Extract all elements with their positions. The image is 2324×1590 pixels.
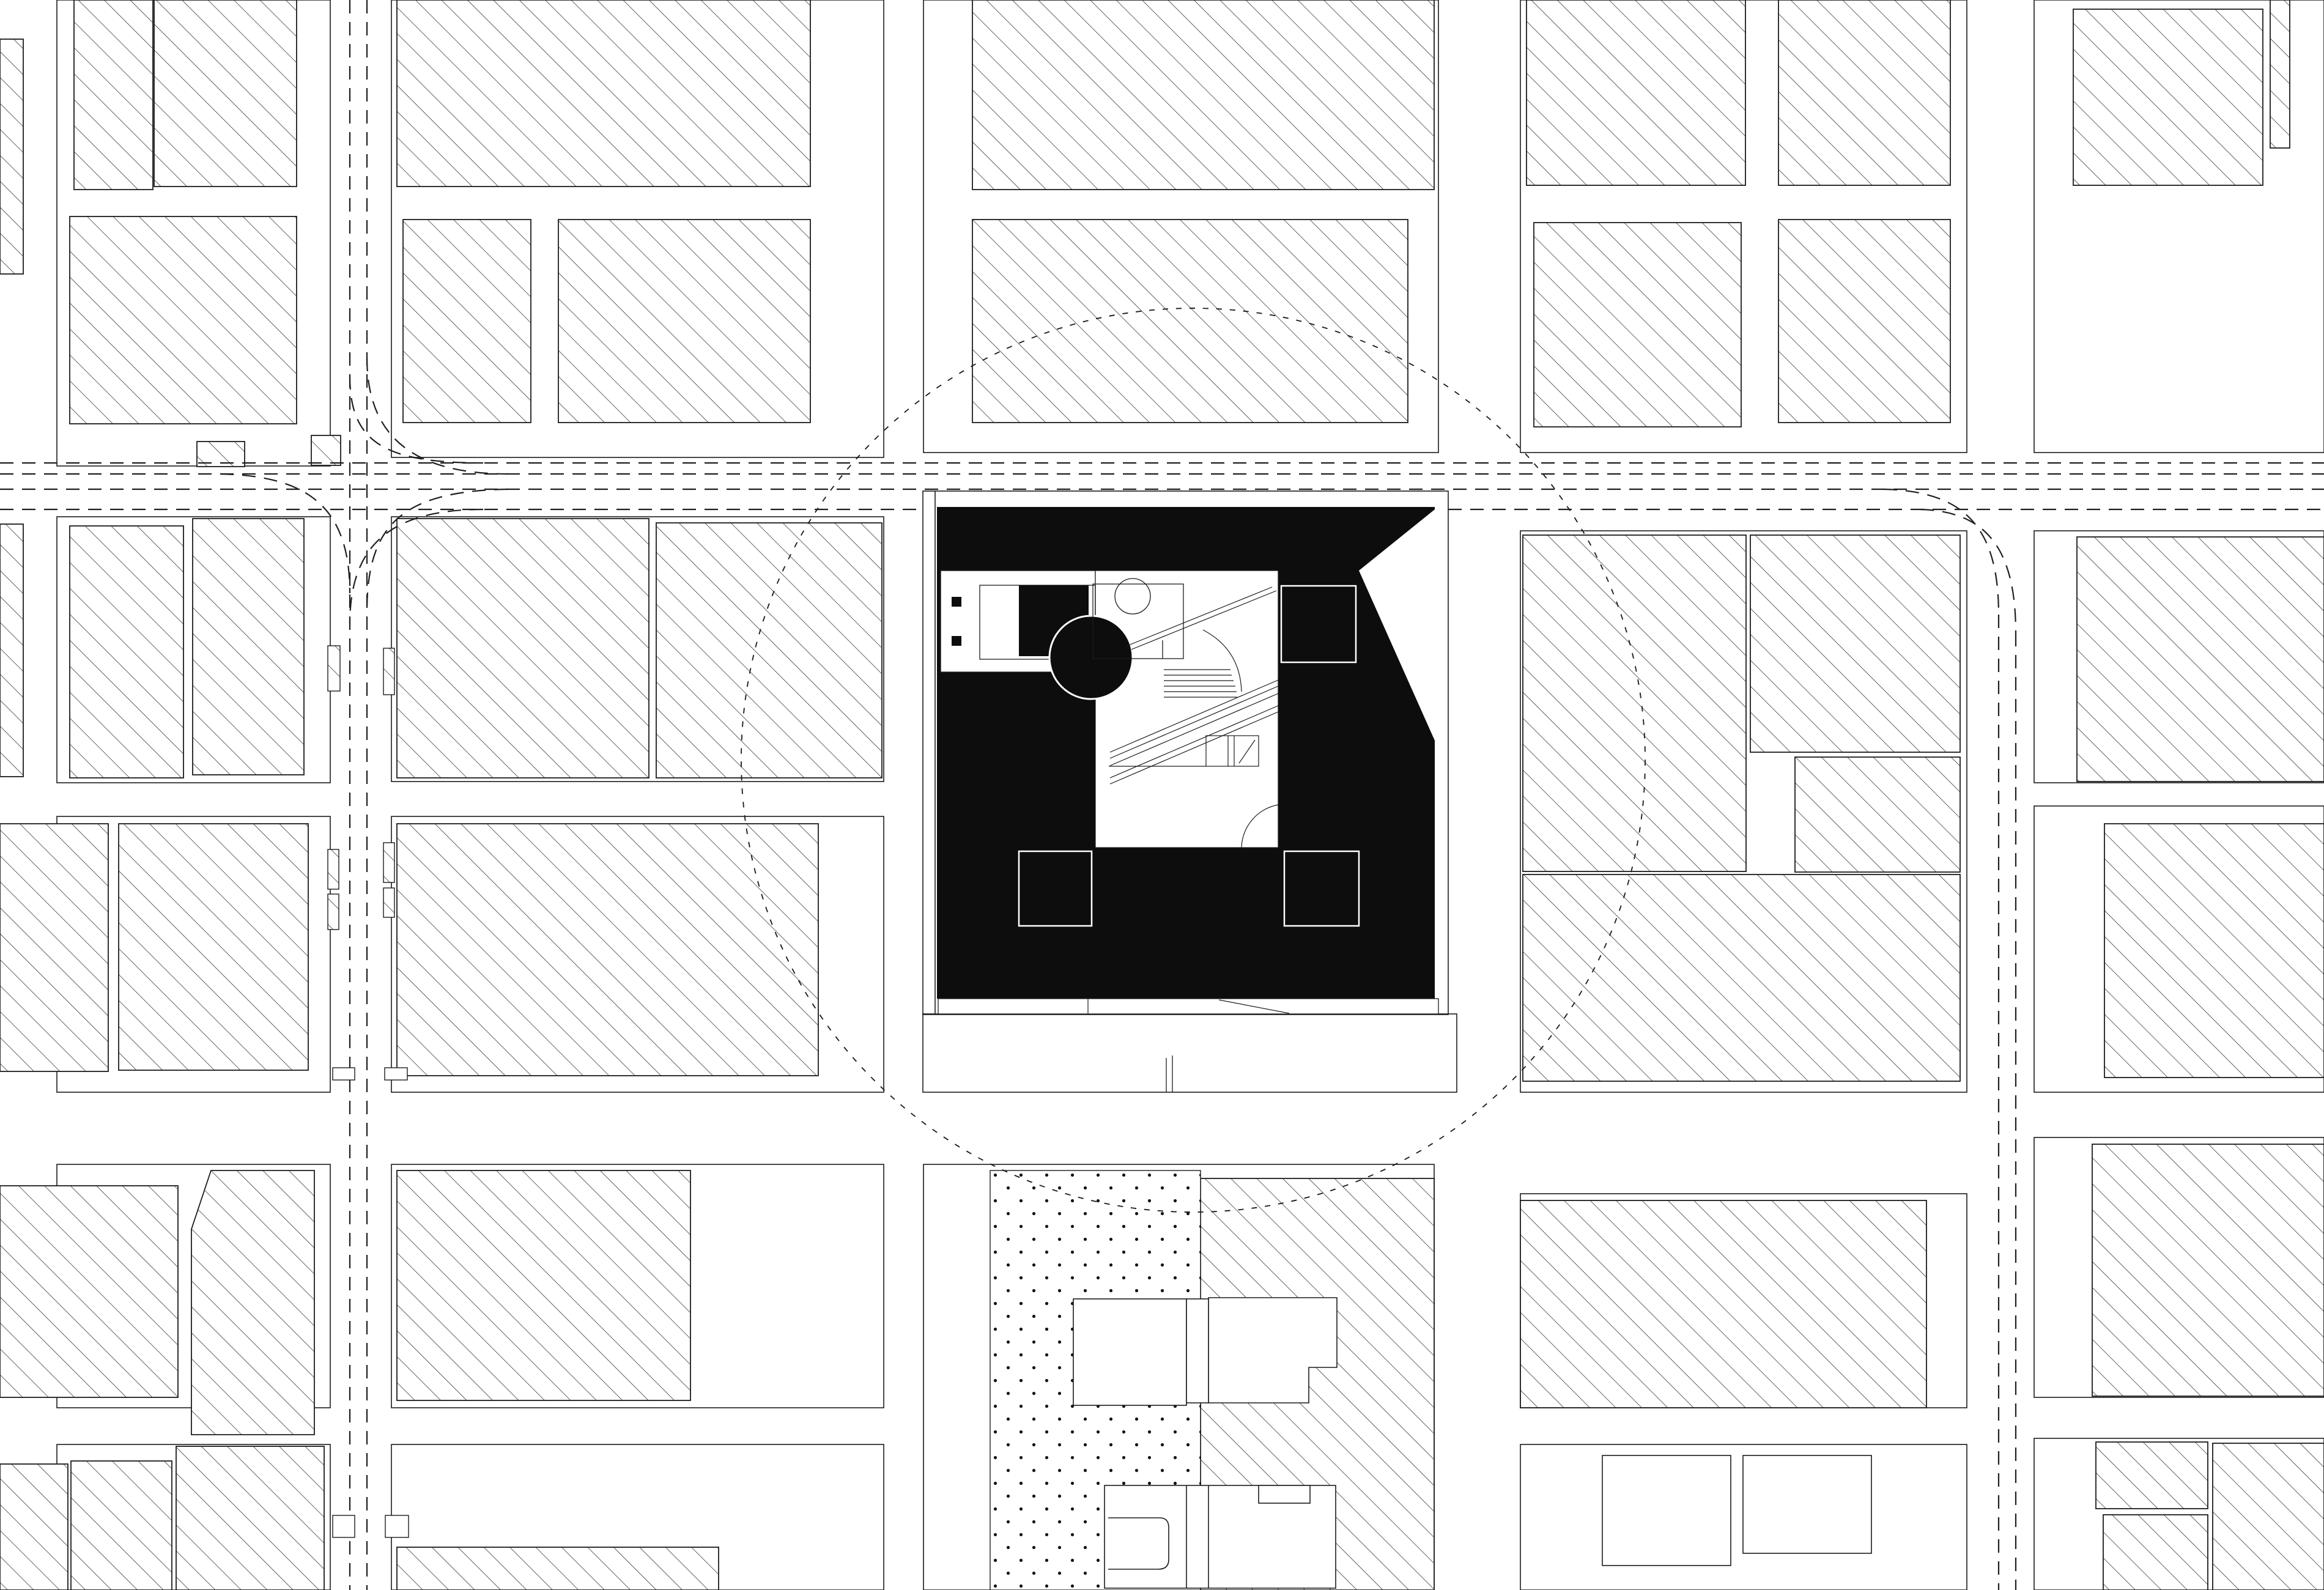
hatched-buildings-shape (1523, 535, 1746, 871)
hatched-buildings-shape (397, 1547, 719, 1590)
tram-platforms-shape (328, 894, 339, 930)
tram-platforms-shape (328, 646, 340, 691)
tram-platforms-shape (333, 1068, 355, 1080)
hatched-buildings-shape (74, 0, 153, 190)
tram-platforms-shape (328, 849, 339, 889)
hatched-buildings-shape (397, 1170, 690, 1400)
hatched-buildings-shape (558, 220, 810, 423)
hatched-buildings-shape (176, 1446, 324, 1590)
main-building-site-shape (1095, 571, 1278, 848)
plaza-footprints-shape (1186, 1299, 1208, 1403)
tram-platforms-shape (383, 648, 394, 695)
hatched-buildings-shape (2092, 1144, 2324, 1396)
hatched-buildings-shape (1795, 757, 1960, 872)
tram-platforms-shape (385, 1515, 409, 1537)
hatched-buildings-shape (1523, 875, 1960, 1081)
plaza-footprints-shape (1073, 1299, 1186, 1405)
hatched-buildings-shape (1750, 535, 1960, 752)
hatched-buildings-shape (397, 0, 810, 187)
tram-platforms-shape (383, 843, 394, 882)
hatched-buildings-shape (0, 39, 23, 274)
hatched-buildings-shape (154, 0, 297, 187)
hatched-buildings-shape (70, 216, 297, 424)
hatched-buildings-shape (0, 1186, 178, 1397)
hatched-buildings-shape (1534, 223, 1741, 427)
hatched-buildings-shape (2104, 824, 2324, 1078)
hatched-buildings-shape (2073, 9, 2263, 185)
hatched-buildings-shape (1778, 0, 1950, 185)
hatched-buildings-shape (2103, 1515, 2208, 1590)
main-building-site-shape (1284, 851, 1359, 926)
tram-platforms-shape (333, 1515, 355, 1537)
main-building-site-shape (938, 999, 1438, 1014)
hatched-buildings-shape (193, 519, 304, 775)
hatched-buildings-shape (656, 523, 882, 778)
hatched-buildings-shape (397, 519, 649, 778)
tram-platforms-shape (385, 1068, 407, 1080)
hatched-buildings-shape (972, 220, 1408, 423)
hatched-buildings-shape (403, 220, 531, 423)
hatched-buildings-shape (1520, 1200, 1926, 1408)
figure-ground-site-plan (0, 0, 2324, 1590)
plaza-footprints-shape (1259, 1485, 1310, 1503)
hatched-buildings-shape (1778, 220, 1950, 423)
hatched-buildings-shape (0, 1464, 68, 1590)
main-building-site-shape (1049, 616, 1133, 699)
hatched-buildings-shape (397, 824, 818, 1076)
hatched-buildings-shape (71, 1461, 172, 1590)
main-building-site (923, 491, 1448, 1092)
tram-platforms-shape (383, 888, 394, 917)
main-building-site-shape (1019, 851, 1092, 926)
site-plan-page (0, 0, 2324, 1590)
hatched-buildings-shape (2096, 1442, 2208, 1509)
main-building-site-shape (952, 597, 961, 607)
hatched-buildings-shape (1527, 0, 1745, 185)
hatched-buildings-shape (2077, 537, 2324, 782)
main-building-site-shape (952, 636, 961, 646)
hatched-buildings-shape (0, 824, 108, 1071)
hatched-buildings-shape (70, 526, 183, 778)
hatched-buildings-shape (311, 435, 341, 465)
hatched-buildings-shape (191, 1170, 314, 1435)
hatched-buildings-shape (2213, 1443, 2324, 1590)
hatched-buildings-shape (972, 0, 1434, 190)
hatched-buildings-shape (0, 524, 23, 777)
hatched-buildings-shape (119, 824, 308, 1070)
main-building-site-shape (1281, 586, 1356, 662)
hatched-buildings-shape (2270, 0, 2290, 148)
